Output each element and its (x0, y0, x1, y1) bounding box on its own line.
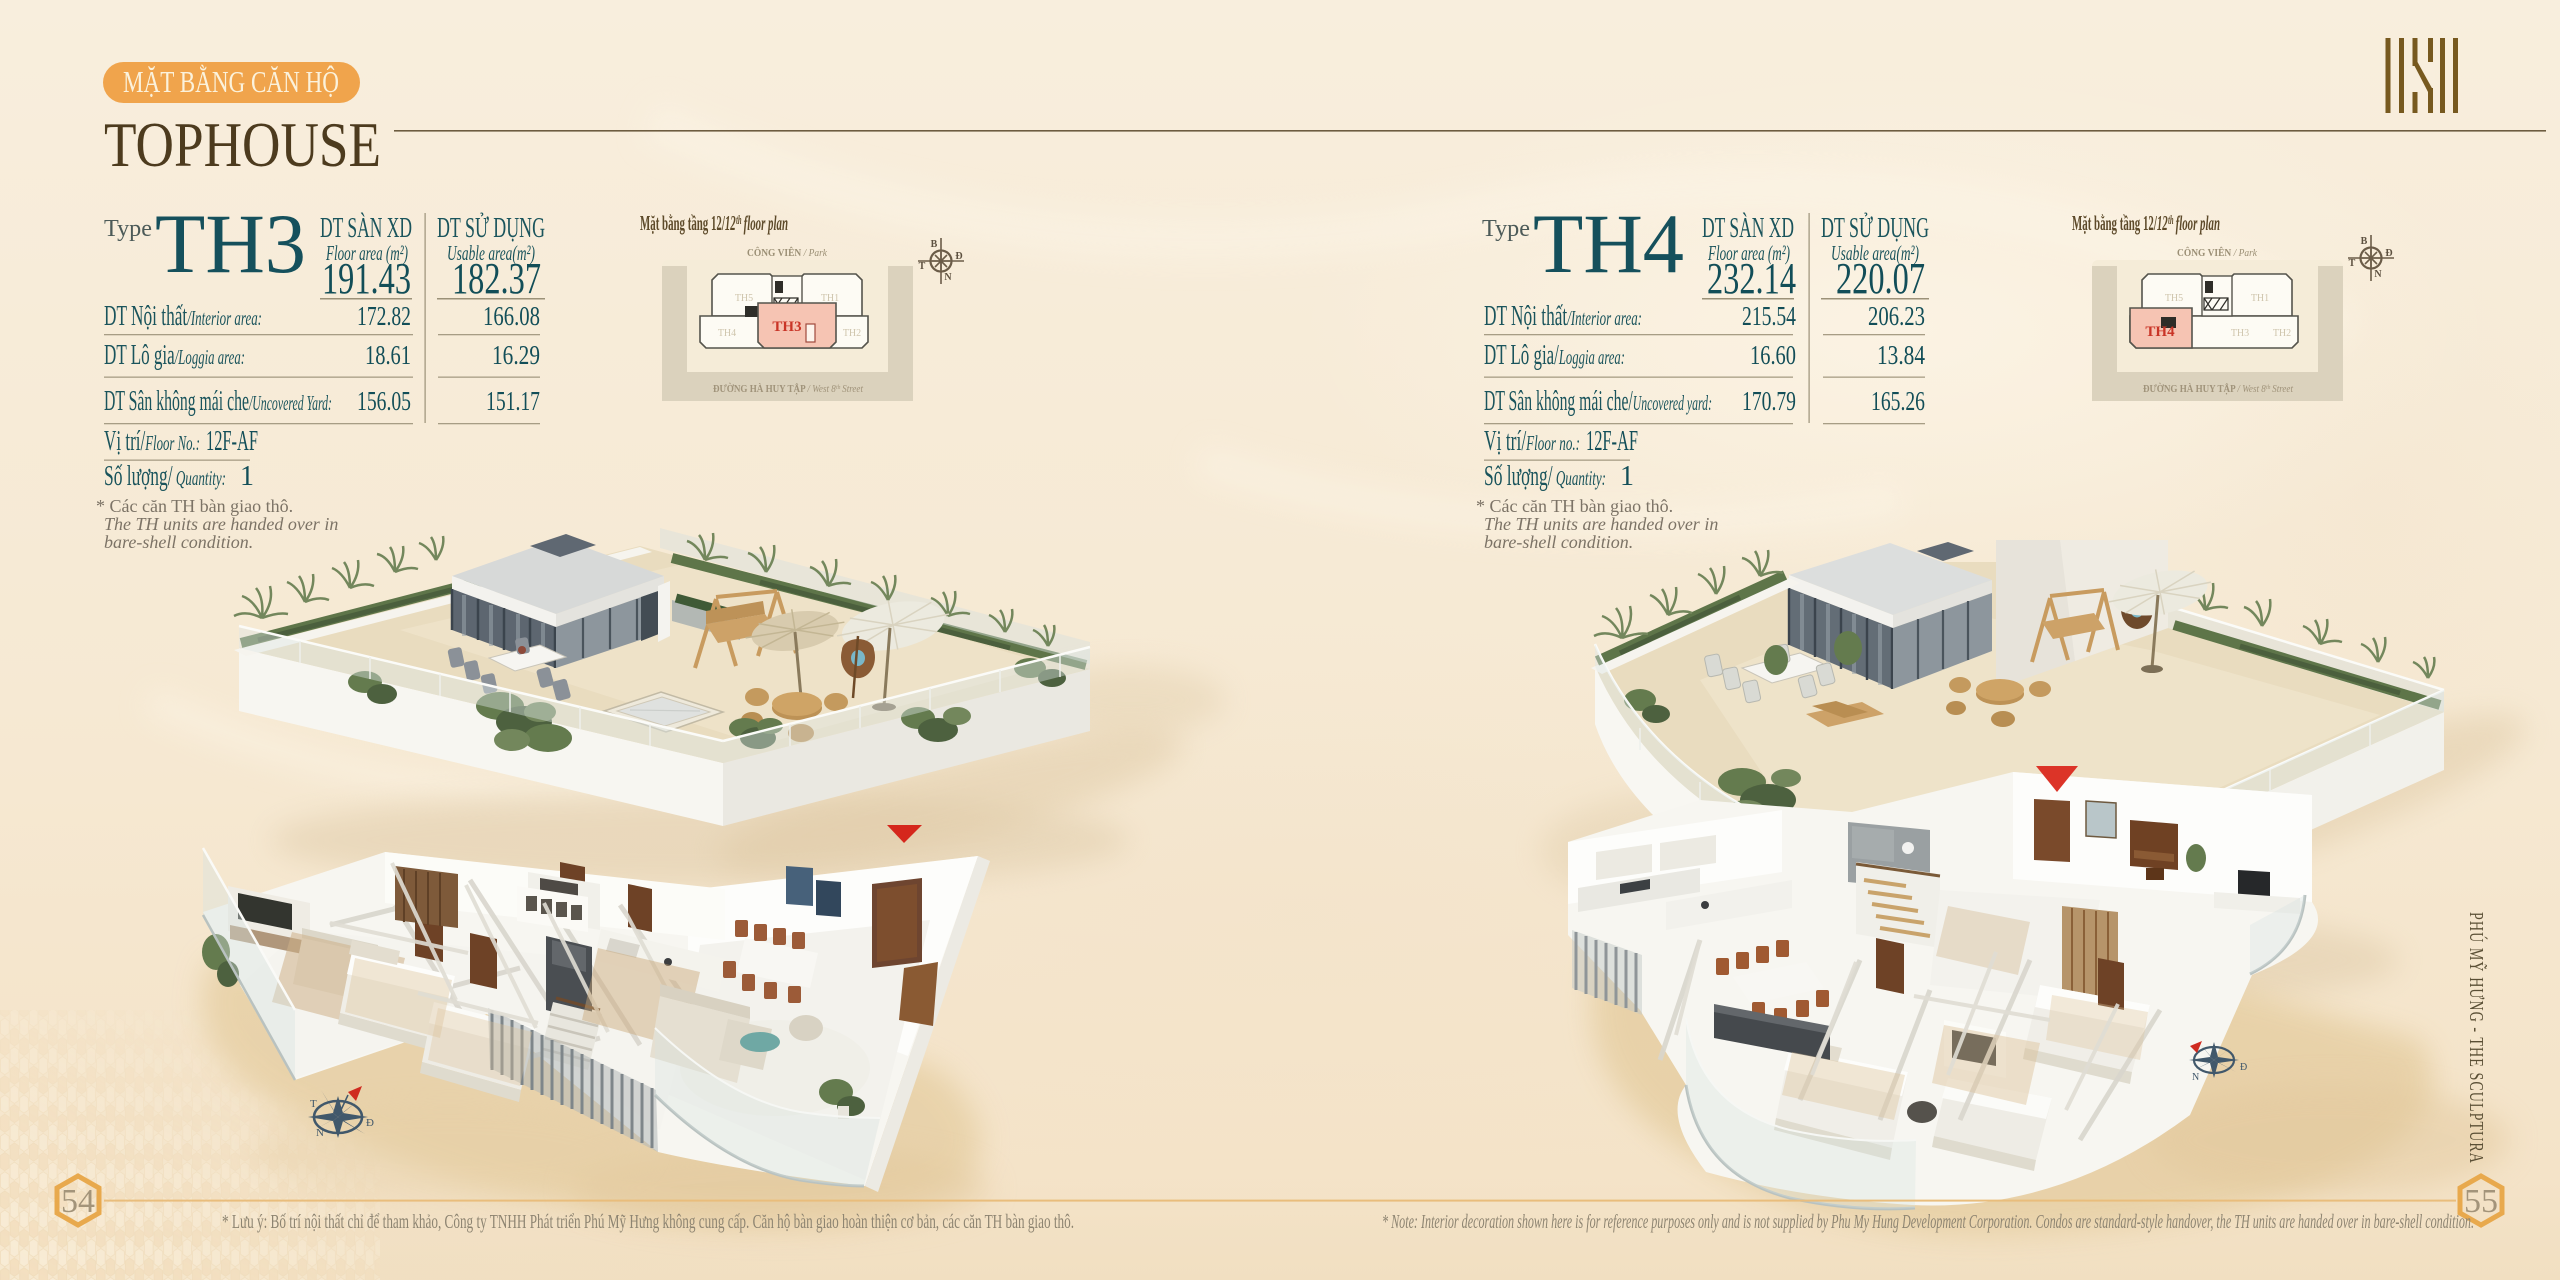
svg-text:DT Lô gia/Loggia area:: DT Lô gia/Loggia area: (1484, 340, 1625, 371)
svg-text:DT Sân không mái che/Uncovered: DT Sân không mái che/Uncovered yard: (1484, 386, 1712, 417)
svg-text:TH1: TH1 (2251, 293, 2269, 304)
svg-text:DT SỬ DỤNG: DT SỬ DỤNG (437, 211, 545, 244)
svg-text:16.29: 16.29 (492, 340, 540, 370)
svg-text:232.14: 232.14 (1707, 254, 1796, 303)
svg-text:DT Nội thất/Interior area:: DT Nội thất/Interior area: (1484, 301, 1642, 332)
svg-text:TH3: TH3 (155, 197, 306, 291)
svg-text:ĐƯỜNG HÀ HUY TẬP / West 8ᵗʰ St: ĐƯỜNG HÀ HUY TẬP / West 8ᵗʰ Street (713, 382, 864, 395)
svg-text:* Các căn TH bàn giao thô.: * Các căn TH bàn giao thô. (96, 496, 293, 516)
svg-text:1: 1 (1620, 461, 1634, 492)
svg-text:CÔNG VIÊN / Park: CÔNG VIÊN / Park (2177, 246, 2258, 259)
svg-text:DT SỬ DỤNG: DT SỬ DỤNG (1821, 211, 1929, 244)
svg-text:The TH units are handed over i: The TH units are handed over in (1484, 514, 1718, 534)
svg-text:TH4: TH4 (2145, 324, 2175, 340)
svg-text:182.37: 182.37 (452, 254, 541, 303)
svg-text:DT Lô gia/Loggia area:: DT Lô gia/Loggia area: (104, 340, 245, 371)
svg-text:* Note: Interior decoration sh: * Note: Interior decoration shown here i… (1382, 1211, 2474, 1233)
svg-text:220.07: 220.07 (1836, 254, 1925, 303)
svg-text:170.79: 170.79 (1742, 386, 1796, 416)
svg-text:bare-shell condition.: bare-shell condition. (1484, 532, 1633, 552)
svg-text:TH3: TH3 (772, 319, 801, 335)
svg-text:B: B (931, 239, 938, 250)
svg-text:CÔNG VIÊN / Park: CÔNG VIÊN / Park (747, 246, 828, 259)
svg-text:Type: Type (104, 216, 152, 242)
svg-text:165.26: 165.26 (1871, 386, 1925, 416)
svg-text:156.05: 156.05 (357, 386, 411, 416)
svg-text:215.54: 215.54 (1742, 301, 1796, 331)
svg-text:Mặt bằng tầng 12/12ᵗʰ floor pl: Mặt bằng tầng 12/12ᵗʰ floor plan (2072, 211, 2220, 235)
svg-text:DT Sân không mái che/Uncovered: DT Sân không mái che/Uncovered Yard: (104, 386, 332, 417)
svg-text:N: N (2192, 1072, 2199, 1083)
svg-text:Đ: Đ (955, 251, 962, 262)
svg-text:TH2: TH2 (2273, 328, 2291, 339)
svg-text:TH5: TH5 (2165, 293, 2183, 304)
svg-text:TH5: TH5 (735, 293, 753, 304)
svg-text:Type: Type (1482, 216, 1530, 242)
svg-text:T: T (310, 1098, 317, 1110)
svg-text:1: 1 (240, 461, 254, 492)
svg-text:TOPHOUSE: TOPHOUSE (104, 109, 381, 180)
svg-text:206.23: 206.23 (1868, 301, 1925, 331)
svg-text:Đ: Đ (2240, 1062, 2247, 1073)
svg-text:12F-AF: 12F-AF (1586, 426, 1638, 457)
svg-text:DT SÀN XD: DT SÀN XD (320, 211, 412, 244)
svg-text:Đ: Đ (366, 1117, 374, 1129)
svg-text:13.84: 13.84 (1877, 340, 1925, 370)
svg-text:The TH units are handed over i: The TH units are handed over in (104, 514, 338, 534)
svg-text:TH3: TH3 (2231, 328, 2249, 339)
svg-text:T: T (919, 261, 926, 272)
svg-text:TH4: TH4 (1533, 197, 1684, 291)
svg-text:Số lượng/ Quantity:: Số lượng/ Quantity: (104, 461, 226, 492)
svg-text:MẶT BẰNG CĂN HỘ: MẶT BẰNG CĂN HỘ (123, 64, 339, 99)
svg-text:TH1: TH1 (821, 293, 839, 304)
svg-text:166.08: 166.08 (483, 301, 540, 331)
svg-text:Số lượng/ Quantity:: Số lượng/ Quantity: (1484, 461, 1606, 492)
svg-text:N: N (2374, 269, 2382, 280)
svg-text:Vị trí/Floor no.:: Vị trí/Floor no.: (1484, 426, 1580, 457)
svg-text:N: N (944, 272, 952, 283)
svg-text:DT SÀN XD: DT SÀN XD (1702, 211, 1794, 244)
svg-text:Mặt bằng tầng 12/12ᵗʰ floor pl: Mặt bằng tầng 12/12ᵗʰ floor plan (640, 211, 788, 235)
svg-text:54: 54 (61, 1183, 95, 1220)
svg-text:Vị trí/Floor No.:: Vị trí/Floor No.: (104, 426, 200, 457)
svg-text:16.60: 16.60 (1750, 340, 1796, 370)
svg-text:ĐƯỜNG HÀ HUY TẬP / West 8ᵗʰ St: ĐƯỜNG HÀ HUY TẬP / West 8ᵗʰ Street (2143, 382, 2294, 395)
svg-text:T: T (2349, 258, 2356, 269)
svg-text:bare-shell condition.: bare-shell condition. (104, 532, 253, 552)
svg-text:12F-AF: 12F-AF (206, 426, 258, 457)
svg-text:TH2: TH2 (843, 328, 861, 339)
svg-text:* Các căn TH bàn giao thô.: * Các căn TH bàn giao thô. (1476, 496, 1673, 516)
svg-text:151.17: 151.17 (486, 386, 540, 416)
svg-text:B: B (2361, 236, 2368, 247)
svg-text:191.43: 191.43 (322, 254, 411, 303)
svg-text:N: N (316, 1127, 324, 1139)
svg-text:172.82: 172.82 (357, 301, 411, 331)
svg-text:DT Nội thất/Interior area:: DT Nội thất/Interior area: (104, 301, 262, 332)
svg-text:PHÚ MỸ HƯNG - THE SCULPTURA: PHÚ MỸ HƯNG - THE SCULPTURA (2465, 912, 2489, 1164)
svg-text:* Lưu ý: Bố trí nội thất chỉ đ: * Lưu ý: Bố trí nội thất chỉ để tham khả… (222, 1211, 1074, 1233)
svg-text:18.61: 18.61 (365, 340, 411, 370)
svg-text:TH4: TH4 (718, 328, 736, 339)
svg-text:Đ: Đ (2385, 248, 2392, 259)
